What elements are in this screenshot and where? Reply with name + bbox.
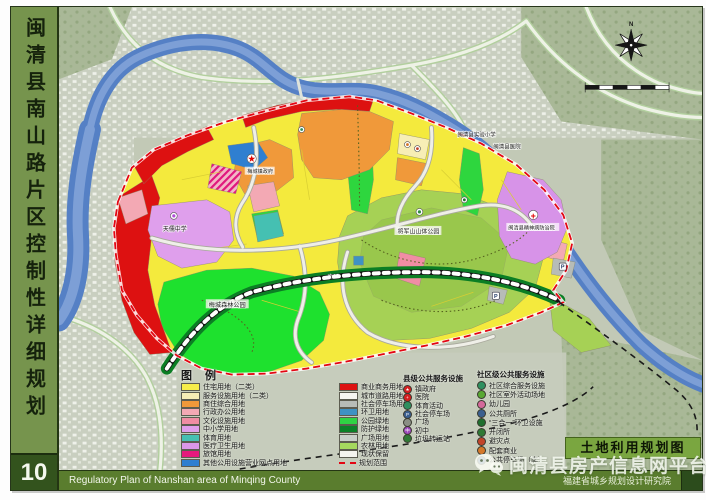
legend-title: 图 例 <box>181 367 221 383</box>
legend-community-title: 社区级公共服务设施 <box>477 369 607 381</box>
legend-swatch <box>339 442 358 450</box>
legend-swatch <box>181 459 200 467</box>
legend-item: 规划范围 <box>339 459 457 467</box>
legend-county-title: 县级公共服务设施 <box>403 373 475 385</box>
legend-label: 规划范围 <box>359 458 387 468</box>
legend-label: 其他公用设施营业网点用地 <box>203 458 287 468</box>
svg-text:P: P <box>494 294 498 300</box>
legend-swatch <box>181 442 200 450</box>
legend-swatch <box>339 434 358 442</box>
legend-swatch <box>339 417 358 425</box>
legend-facility-item: 公共厕所 <box>477 409 607 418</box>
legend-facility-item: 广场 <box>403 418 475 426</box>
sheet-number: 10 <box>11 453 57 490</box>
legend-facility-item: 社区室外活动场地 <box>477 390 607 399</box>
legend-swatch <box>181 450 200 458</box>
government-star-icon: ★ <box>248 155 256 164</box>
label-experimental-primary-school: 闽清县实验小学 <box>457 131 496 139</box>
legend-facility-item: 垃圾转运站 <box>403 435 475 443</box>
legend-swatch <box>181 408 200 416</box>
legend-facility-item: 社区综合服务设施 <box>477 381 607 390</box>
label-county-hospital: 闽清县医院 <box>493 143 521 151</box>
legend-swatch <box>339 400 358 408</box>
facility-icon <box>403 401 412 410</box>
legend-swatch <box>339 425 358 433</box>
label-psychiatric-hospital: 闽清县精神病防治院 <box>508 223 555 231</box>
legend-swatch <box>339 450 358 458</box>
legend-facility-item: “三合一”环卫设施 <box>477 418 607 427</box>
legend-swatch <box>181 417 200 425</box>
legend-county-facilities: 县级公共服务设施 ★ 镇政府 + 医院 <box>403 373 475 443</box>
compass-north-label: N <box>629 22 633 28</box>
facility-icon <box>477 437 486 446</box>
legend-landuse-left: 住宅用地（二类） 服务设施用地（二类） 商住综合用地 <box>181 383 333 467</box>
facility-icon <box>477 400 486 409</box>
legend-swatch <box>339 462 356 464</box>
legend-swatch <box>181 425 200 433</box>
sidebar-title-column: 闽清县南山路片区控制性详细规划 10 <box>11 7 59 490</box>
legend-swatch <box>339 392 358 400</box>
legend-item: 现状保留 <box>339 450 457 458</box>
legend-swatch <box>181 392 200 400</box>
hospital-cross-icon: + <box>531 211 536 221</box>
plan-sheet-page: 闽清县南山路片区控制性详细规划 10 <box>0 0 706 500</box>
legend-facility-item: ★ 镇政府 <box>403 385 475 393</box>
legend-swatch <box>181 383 200 391</box>
label-hill-park: 将军山山体公园 <box>397 227 439 235</box>
legend-swatch <box>339 383 358 391</box>
legend-swatch <box>181 400 200 408</box>
legend-swatch <box>339 408 358 416</box>
label-town-government: 梅城镇政府 <box>247 167 273 175</box>
plan-sheet: 闽清县南山路片区控制性详细规划 10 <box>10 6 703 491</box>
legend-facility-item: 开闭所 <box>477 427 607 436</box>
watermark-text: 闽清县房产信息网平台 <box>509 451 706 478</box>
facility-icon <box>477 428 486 437</box>
facility-icon <box>403 434 412 443</box>
land-use-map: ★ + P P <box>59 7 702 471</box>
facility-icon <box>477 409 486 418</box>
legend-facility-item: 幼儿园 <box>477 400 607 409</box>
watermark: 闽清县房产信息网平台 <box>474 451 706 478</box>
legend-item: 其他公用设施营业网点用地 <box>181 459 333 467</box>
label-middle-school: 天儒中学 <box>163 225 187 233</box>
facility-label: 垃圾转运站 <box>415 434 450 444</box>
legend-facility-item: P 社会停车场 <box>403 410 475 418</box>
parking-icon: P <box>561 265 565 271</box>
plan-title-vertical: 闽清县南山路片区控制性详细规划 <box>20 7 49 490</box>
facility-icon <box>477 381 486 390</box>
facility-icon <box>477 418 486 427</box>
wechat-icon <box>474 452 504 478</box>
label-forest-park: 梅城森林公园 <box>209 301 246 309</box>
legend-swatch <box>181 434 200 442</box>
facility-icon <box>477 390 486 399</box>
